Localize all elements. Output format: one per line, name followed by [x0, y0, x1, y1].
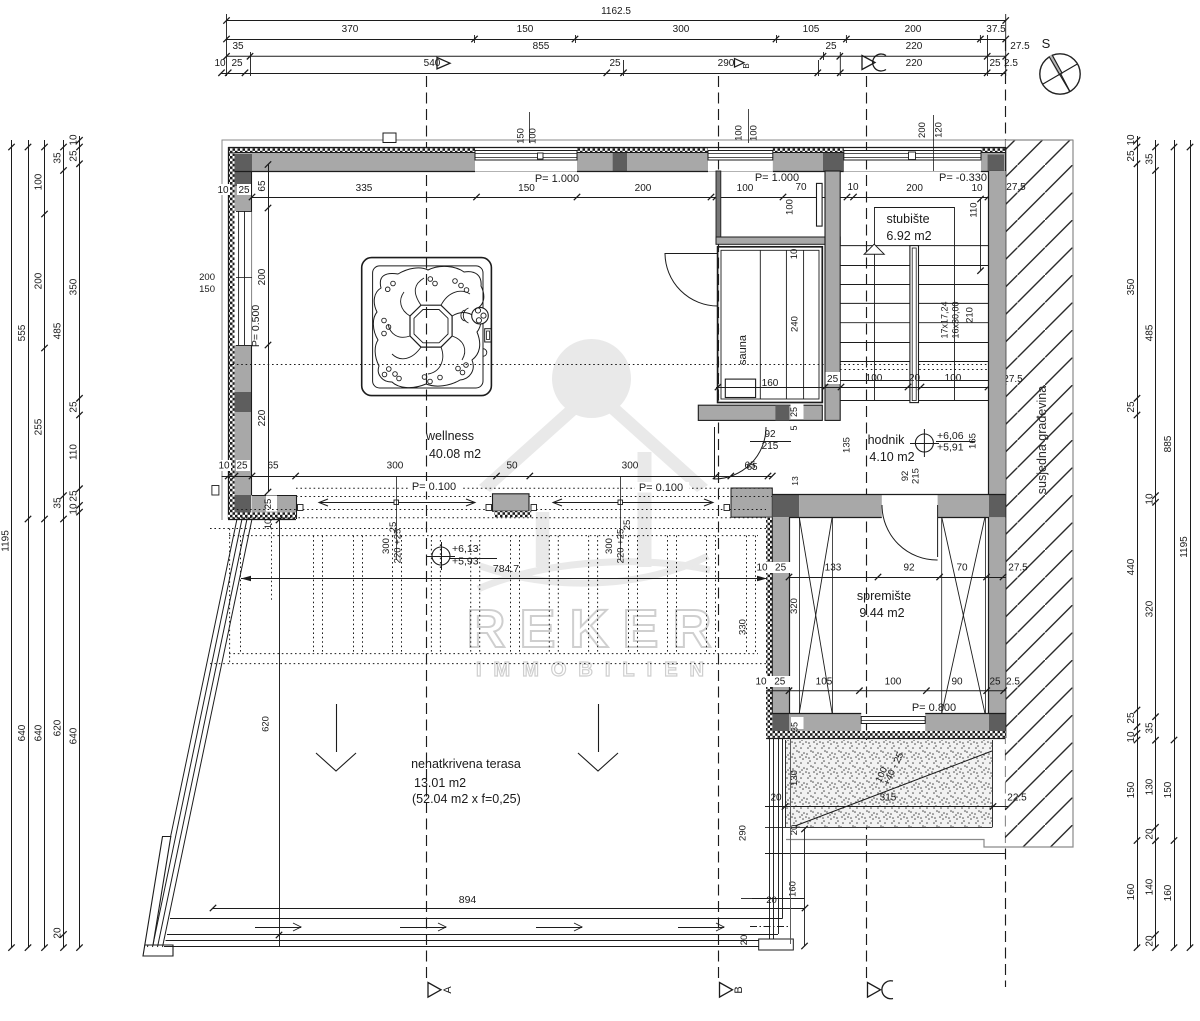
- svg-text:25: 25: [1126, 150, 1137, 162]
- svg-text:620: 620: [260, 716, 271, 732]
- svg-text:P= 0.100: P= 0.100: [412, 481, 456, 493]
- svg-text:35: 35: [790, 722, 800, 732]
- svg-text:220: 220: [906, 41, 923, 52]
- svg-text:100: 100: [945, 373, 962, 384]
- svg-text:65: 65: [744, 461, 756, 472]
- svg-text:160: 160: [1163, 884, 1174, 901]
- svg-text:110: 110: [969, 202, 980, 217]
- svg-text:300: 300: [387, 461, 404, 472]
- svg-text:2.5: 2.5: [1004, 58, 1018, 69]
- svg-text:27.5: 27.5: [1003, 374, 1023, 385]
- svg-text:sauna: sauna: [737, 334, 749, 365]
- svg-text:REKER: REKER: [466, 599, 725, 659]
- svg-text:IMMOBILIEN: IMMOBILIEN: [476, 659, 716, 681]
- svg-text:25: 25: [989, 677, 1001, 688]
- svg-text:885: 885: [1163, 435, 1174, 452]
- svg-text:130: 130: [1145, 778, 1156, 795]
- svg-text:4.10 m2: 4.10 m2: [869, 450, 914, 464]
- svg-text:25: 25: [609, 58, 621, 69]
- svg-text:25: 25: [775, 563, 787, 574]
- svg-text:100: 100: [734, 125, 745, 141]
- svg-text:150: 150: [518, 183, 535, 194]
- svg-text:10: 10: [218, 461, 230, 472]
- svg-text:+5,91: +5,91: [937, 442, 964, 454]
- svg-text:210: 210: [965, 307, 976, 323]
- svg-text:100: 100: [737, 183, 754, 194]
- svg-text:20: 20: [909, 373, 921, 384]
- svg-text:20: 20: [1145, 935, 1156, 947]
- svg-text:300: 300: [381, 538, 392, 554]
- svg-text:100: 100: [885, 677, 902, 688]
- svg-text:485: 485: [53, 322, 64, 339]
- svg-text:90: 90: [951, 677, 963, 688]
- svg-text:120: 120: [934, 122, 945, 138]
- svg-text:150: 150: [1163, 781, 1174, 798]
- svg-text:1195: 1195: [1, 530, 12, 552]
- svg-text:stubište: stubište: [886, 212, 929, 226]
- svg-text:9.44 m2: 9.44 m2: [859, 606, 904, 620]
- svg-text:640: 640: [17, 724, 28, 741]
- svg-text:200: 200: [635, 183, 652, 194]
- svg-text:165: 165: [968, 433, 979, 449]
- svg-text:nenatkrivena terasa: nenatkrivena terasa: [411, 757, 521, 771]
- svg-text:10: 10: [1126, 731, 1137, 743]
- svg-text:(52.04 m2 x f=0,25): (52.04 m2 x f=0,25): [412, 792, 521, 806]
- svg-text:200: 200: [199, 272, 215, 283]
- svg-text:150: 150: [517, 24, 534, 35]
- svg-text:20: 20: [1145, 828, 1156, 840]
- svg-text:255: 255: [34, 418, 45, 435]
- svg-text:P= 1.000: P= 1.000: [755, 172, 799, 184]
- svg-text:P= 0.800: P= 0.800: [912, 702, 956, 714]
- svg-text:27.5: 27.5: [1008, 563, 1028, 574]
- svg-text:220: 220: [257, 409, 268, 426]
- svg-text:200: 200: [906, 183, 923, 194]
- svg-text:wellness: wellness: [425, 429, 474, 443]
- svg-text:P= 1.000: P= 1.000: [535, 173, 579, 185]
- svg-text:540: 540: [424, 58, 441, 69]
- svg-text:35: 35: [1145, 722, 1156, 734]
- svg-text:100: 100: [785, 199, 796, 215]
- svg-text:10: 10: [69, 134, 80, 146]
- svg-text:350: 350: [1126, 278, 1137, 295]
- svg-text:290: 290: [738, 825, 749, 841]
- svg-text:+5,93: +5,93: [452, 556, 479, 568]
- svg-text:65: 65: [257, 180, 268, 192]
- svg-text:300: 300: [604, 538, 615, 554]
- svg-text:100: 100: [527, 128, 538, 144]
- svg-text:37.5: 37.5: [986, 24, 1006, 35]
- svg-text:640: 640: [34, 724, 45, 741]
- svg-text:25: 25: [989, 58, 1001, 69]
- svg-text:485: 485: [1145, 324, 1156, 341]
- svg-text:6.92 m2: 6.92 m2: [886, 229, 931, 243]
- svg-text:784.7: 784.7: [493, 563, 519, 575]
- svg-text:350: 350: [69, 278, 80, 295]
- svg-text:200: 200: [917, 122, 928, 138]
- svg-text:20: 20: [766, 895, 777, 906]
- svg-text:25: 25: [1126, 712, 1137, 724]
- svg-text:B: B: [733, 986, 745, 993]
- svg-text:20: 20: [53, 927, 64, 939]
- svg-text:25: 25: [827, 374, 839, 385]
- svg-text:22.5: 22.5: [1007, 793, 1027, 804]
- svg-text:65: 65: [267, 461, 279, 472]
- svg-text:10: 10: [1126, 134, 1137, 146]
- svg-text:A: A: [442, 986, 454, 994]
- svg-text:290: 290: [718, 58, 735, 69]
- svg-text:92: 92: [900, 471, 911, 482]
- svg-text:B: B: [742, 63, 751, 68]
- svg-text:620: 620: [53, 719, 64, 736]
- svg-text:2.5: 2.5: [1006, 677, 1020, 688]
- svg-text:13.01 m2: 13.01 m2: [414, 776, 466, 790]
- svg-text:70: 70: [956, 563, 968, 574]
- svg-text:300: 300: [622, 461, 639, 472]
- svg-text:16x30,00: 16x30,00: [951, 301, 961, 338]
- svg-text:10: 10: [214, 58, 226, 69]
- svg-text:133: 133: [825, 563, 842, 574]
- svg-text:25: 25: [238, 185, 250, 196]
- svg-text:110: 110: [69, 444, 80, 460]
- svg-text:200: 200: [34, 272, 45, 289]
- svg-text:100: 100: [34, 173, 45, 190]
- svg-text:105: 105: [803, 24, 820, 35]
- svg-text:40.08 m2: 40.08 m2: [429, 447, 481, 461]
- svg-text:335: 335: [356, 183, 373, 194]
- svg-text:13: 13: [790, 476, 800, 486]
- svg-text:10: 10: [971, 183, 983, 194]
- svg-text:370: 370: [342, 24, 359, 35]
- svg-text:25: 25: [69, 150, 80, 162]
- svg-text:140: 140: [1145, 878, 1156, 895]
- svg-text:25: 25: [69, 490, 80, 502]
- svg-text:320: 320: [789, 598, 800, 614]
- svg-text:35: 35: [1145, 153, 1156, 165]
- svg-text:894: 894: [459, 894, 477, 906]
- svg-text:10: 10: [847, 182, 859, 193]
- svg-text:25: 25: [789, 407, 799, 417]
- svg-text:220 +25: 220 +25: [616, 529, 627, 564]
- svg-text:10: 10: [789, 249, 800, 260]
- svg-text:150: 150: [199, 284, 215, 295]
- svg-text:10: 10: [755, 677, 767, 688]
- svg-text:P= -0.330: P= -0.330: [939, 172, 987, 184]
- svg-text:25: 25: [263, 499, 274, 510]
- svg-text:35: 35: [53, 152, 64, 164]
- svg-text:240: 240: [790, 316, 801, 332]
- svg-text:hodnik: hodnik: [868, 433, 906, 447]
- svg-text:10: 10: [1145, 493, 1156, 505]
- svg-text:100: 100: [866, 373, 883, 384]
- svg-text:10: 10: [69, 503, 80, 515]
- svg-text:10: 10: [263, 519, 274, 530]
- svg-text:25: 25: [69, 401, 80, 413]
- svg-text:92: 92: [764, 429, 776, 440]
- svg-text:+6,13: +6,13: [452, 543, 479, 555]
- svg-text:855: 855: [533, 41, 550, 52]
- svg-text:25: 25: [1126, 401, 1137, 413]
- svg-text:105: 105: [816, 677, 833, 688]
- svg-text:92: 92: [903, 563, 915, 574]
- svg-text:135: 135: [842, 437, 853, 453]
- svg-text:P= 0.100: P= 0.100: [639, 482, 683, 494]
- svg-text:35: 35: [232, 41, 244, 52]
- svg-text:susjedna građevina: susjedna građevina: [1035, 386, 1049, 494]
- svg-text:1195: 1195: [1179, 536, 1190, 558]
- svg-text:25: 25: [231, 58, 243, 69]
- svg-text:300: 300: [673, 24, 690, 35]
- svg-text:27.5: 27.5: [1010, 41, 1030, 52]
- svg-text:220: 220: [906, 58, 923, 69]
- svg-text:+6,06: +6,06: [937, 430, 964, 442]
- svg-text:215: 215: [911, 468, 922, 484]
- svg-text:10: 10: [756, 563, 768, 574]
- svg-text:27.5: 27.5: [1006, 182, 1026, 193]
- svg-text:spremište: spremište: [857, 589, 911, 603]
- svg-text:640: 640: [69, 727, 80, 744]
- svg-text:160: 160: [788, 881, 799, 897]
- svg-text:555: 555: [17, 324, 28, 341]
- svg-text:200: 200: [905, 24, 922, 35]
- svg-text:50: 50: [506, 461, 518, 472]
- svg-text:20: 20: [770, 793, 782, 804]
- svg-text:150: 150: [1126, 781, 1137, 798]
- svg-text:35: 35: [53, 497, 64, 509]
- svg-text:200: 200: [257, 268, 268, 285]
- svg-text:150: 150: [515, 128, 526, 144]
- svg-text:S: S: [1042, 36, 1051, 51]
- svg-text:5: 5: [789, 425, 799, 430]
- svg-text:215: 215: [762, 441, 779, 452]
- svg-text:160: 160: [1126, 883, 1137, 900]
- svg-text:100: 100: [748, 125, 759, 141]
- svg-text:1162.5: 1162.5: [601, 6, 631, 17]
- svg-text:320: 320: [1145, 600, 1156, 617]
- svg-text:10: 10: [217, 185, 229, 196]
- svg-text:25: 25: [774, 677, 786, 688]
- svg-text:17x17,24: 17x17,24: [940, 301, 950, 338]
- svg-text:P= 0.500: P= 0.500: [250, 305, 262, 347]
- svg-text:25: 25: [236, 461, 248, 472]
- svg-text:440: 440: [1126, 558, 1137, 575]
- svg-text:315: 315: [880, 793, 897, 804]
- svg-text:25: 25: [825, 41, 837, 52]
